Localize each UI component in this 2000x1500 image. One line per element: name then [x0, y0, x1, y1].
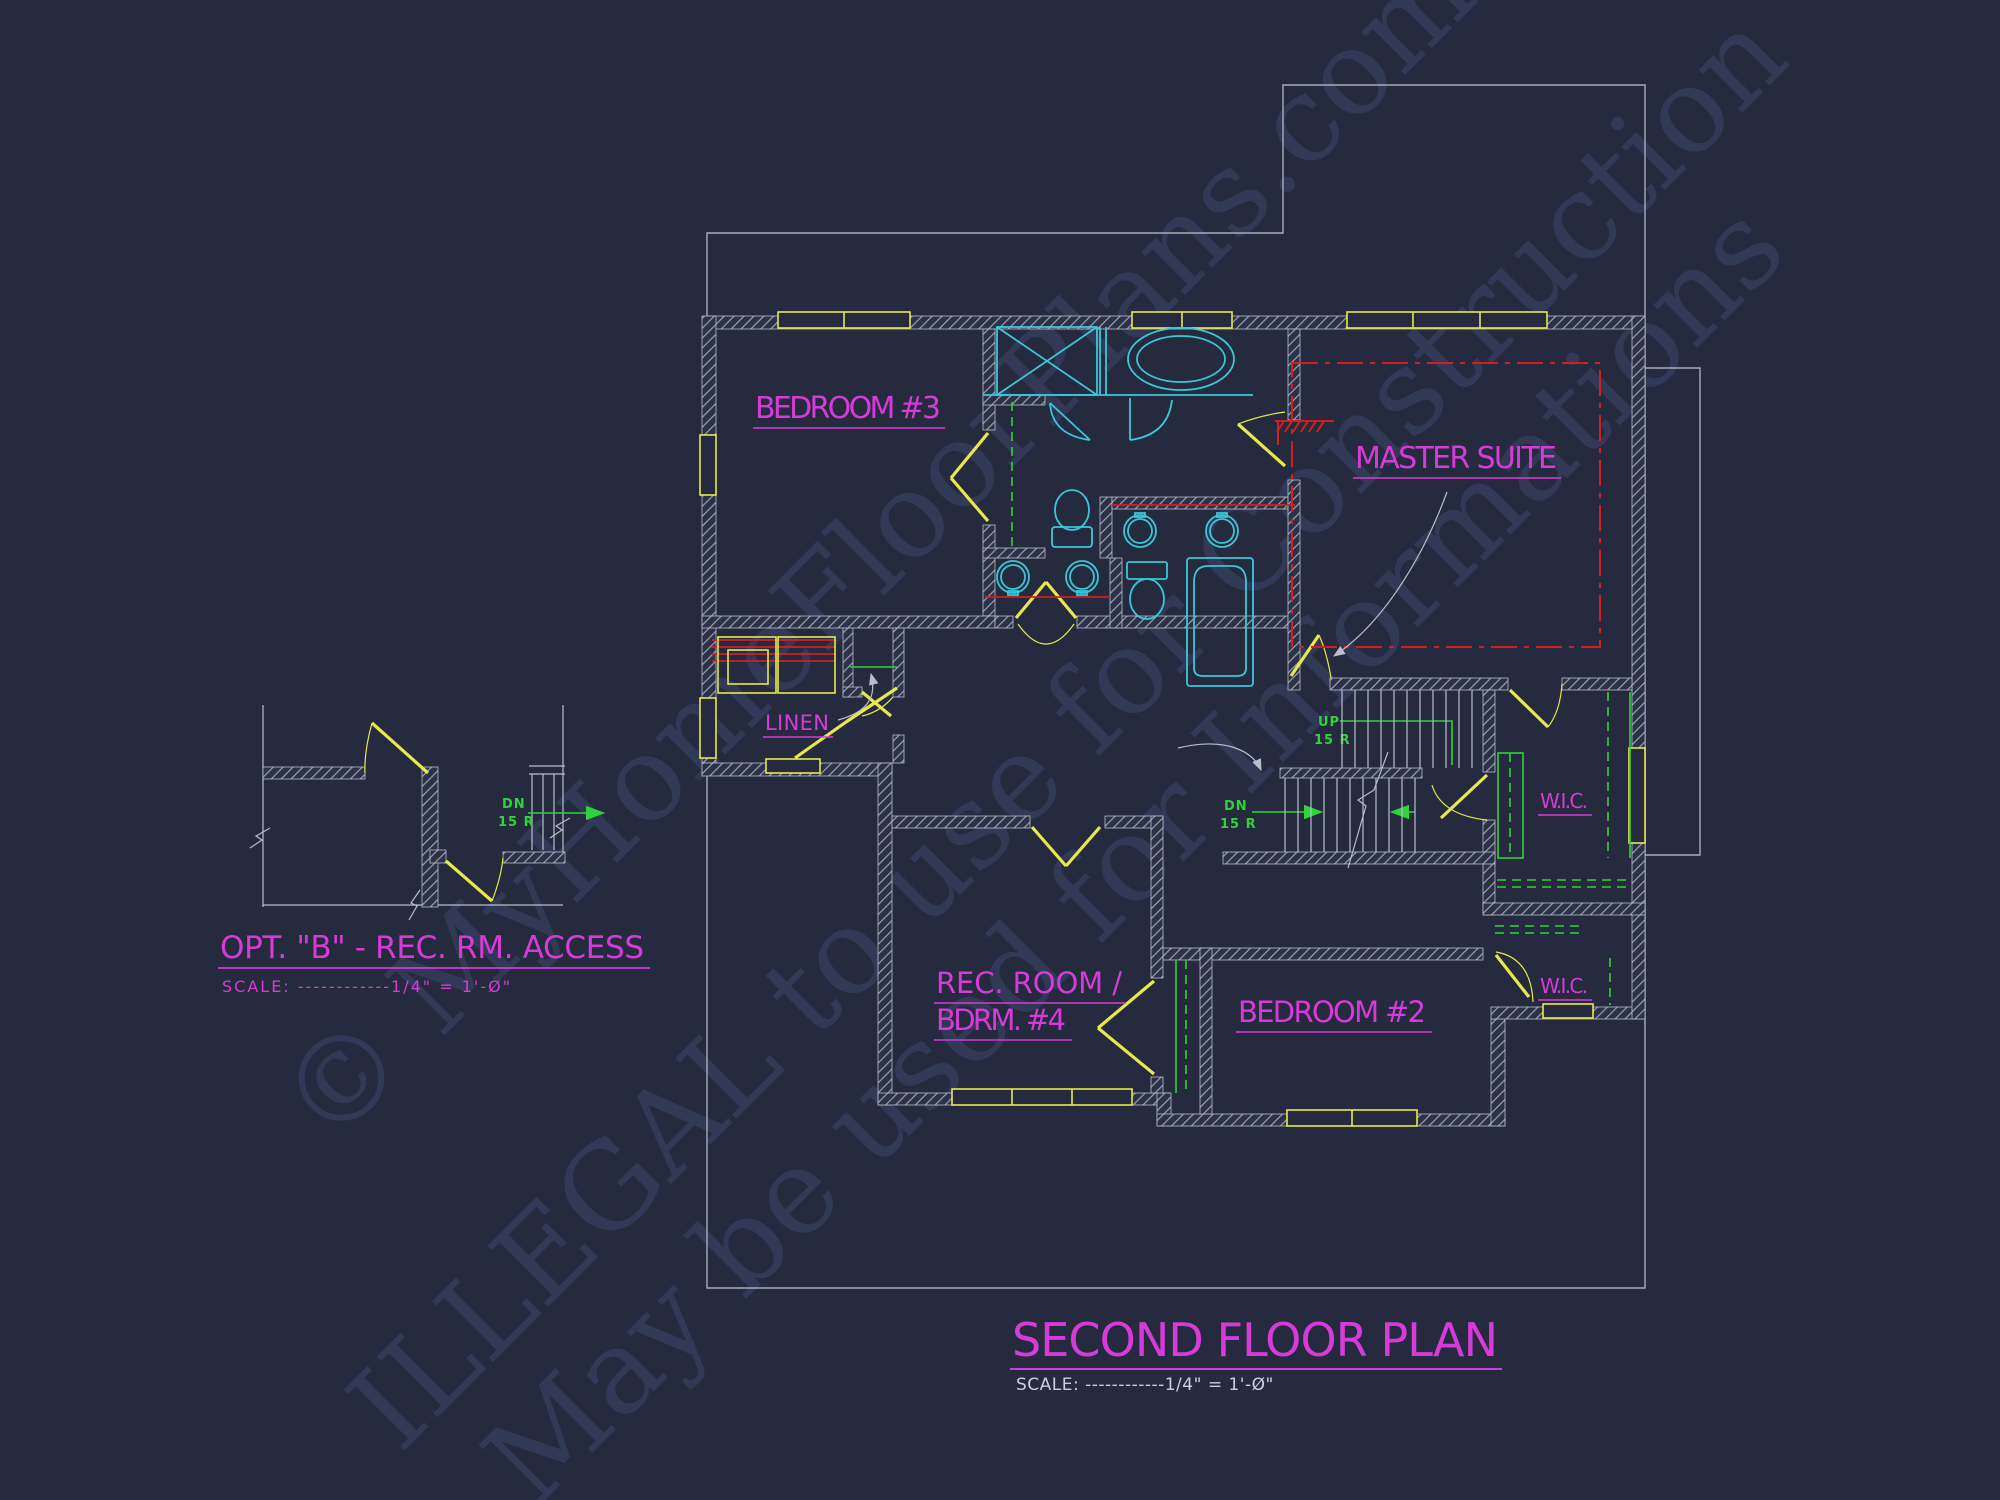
room-bedroom3: [716, 329, 983, 616]
stairs-up-risers: 15 R: [1314, 733, 1351, 748]
room-wic1: [1495, 690, 1632, 903]
room-laundry: [716, 628, 843, 763]
stairs-dn-label: DN: [1224, 799, 1248, 814]
room-wic2: [1495, 952, 1632, 1007]
floor-plan-sheet: © MyHomeFloorPlans.com ILLEGAL to use fo…: [0, 0, 2000, 1500]
stairs-dn-risers: 15 R: [1220, 817, 1257, 832]
stairs-up-label: UP: [1318, 715, 1340, 730]
window-master-top: [1347, 312, 1547, 328]
window-laundry-left: [700, 698, 716, 758]
window-bedroom3-left: [700, 435, 716, 495]
room-rec-room: [892, 828, 1151, 1093]
window-bath-top: [1132, 312, 1232, 328]
room-master-suite: [1300, 329, 1632, 678]
window-bedroom3-top: [778, 312, 910, 328]
optb-title: OPT. "B" - REC. RM. ACCESS: [220, 930, 646, 966]
floor-plan-drawing: © MyHomeFloorPlans.com ILLEGAL to use fo…: [0, 0, 2000, 1500]
optb-dn-label: DN: [502, 797, 526, 812]
sheet-scale: SCALE: ------------1/4" = 1'-Ø": [1016, 1375, 1274, 1395]
optb-dn-risers: 15 R: [498, 815, 535, 830]
room-hall: [892, 628, 1223, 816]
room-bathrooms: [995, 329, 1288, 616]
optb-scale: SCALE: ------------1/4" = 1'-Ø": [222, 977, 512, 996]
room-bedroom2: [1212, 960, 1491, 1114]
sheet-title: SECOND FLOOR PLAN: [1012, 1313, 1500, 1367]
